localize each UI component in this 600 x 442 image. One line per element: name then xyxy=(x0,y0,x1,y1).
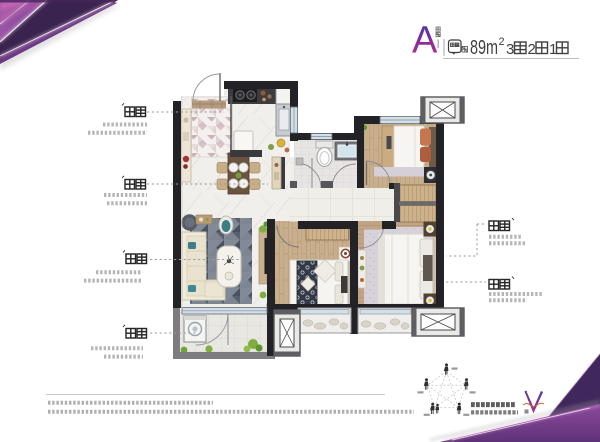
svg-text:2: 2 xyxy=(499,36,505,48)
svg-text:89m: 89m xyxy=(470,37,498,59)
svg-text:2: 2 xyxy=(528,41,536,58)
svg-text:A: A xyxy=(412,20,438,62)
svg-text:3: 3 xyxy=(506,41,514,58)
